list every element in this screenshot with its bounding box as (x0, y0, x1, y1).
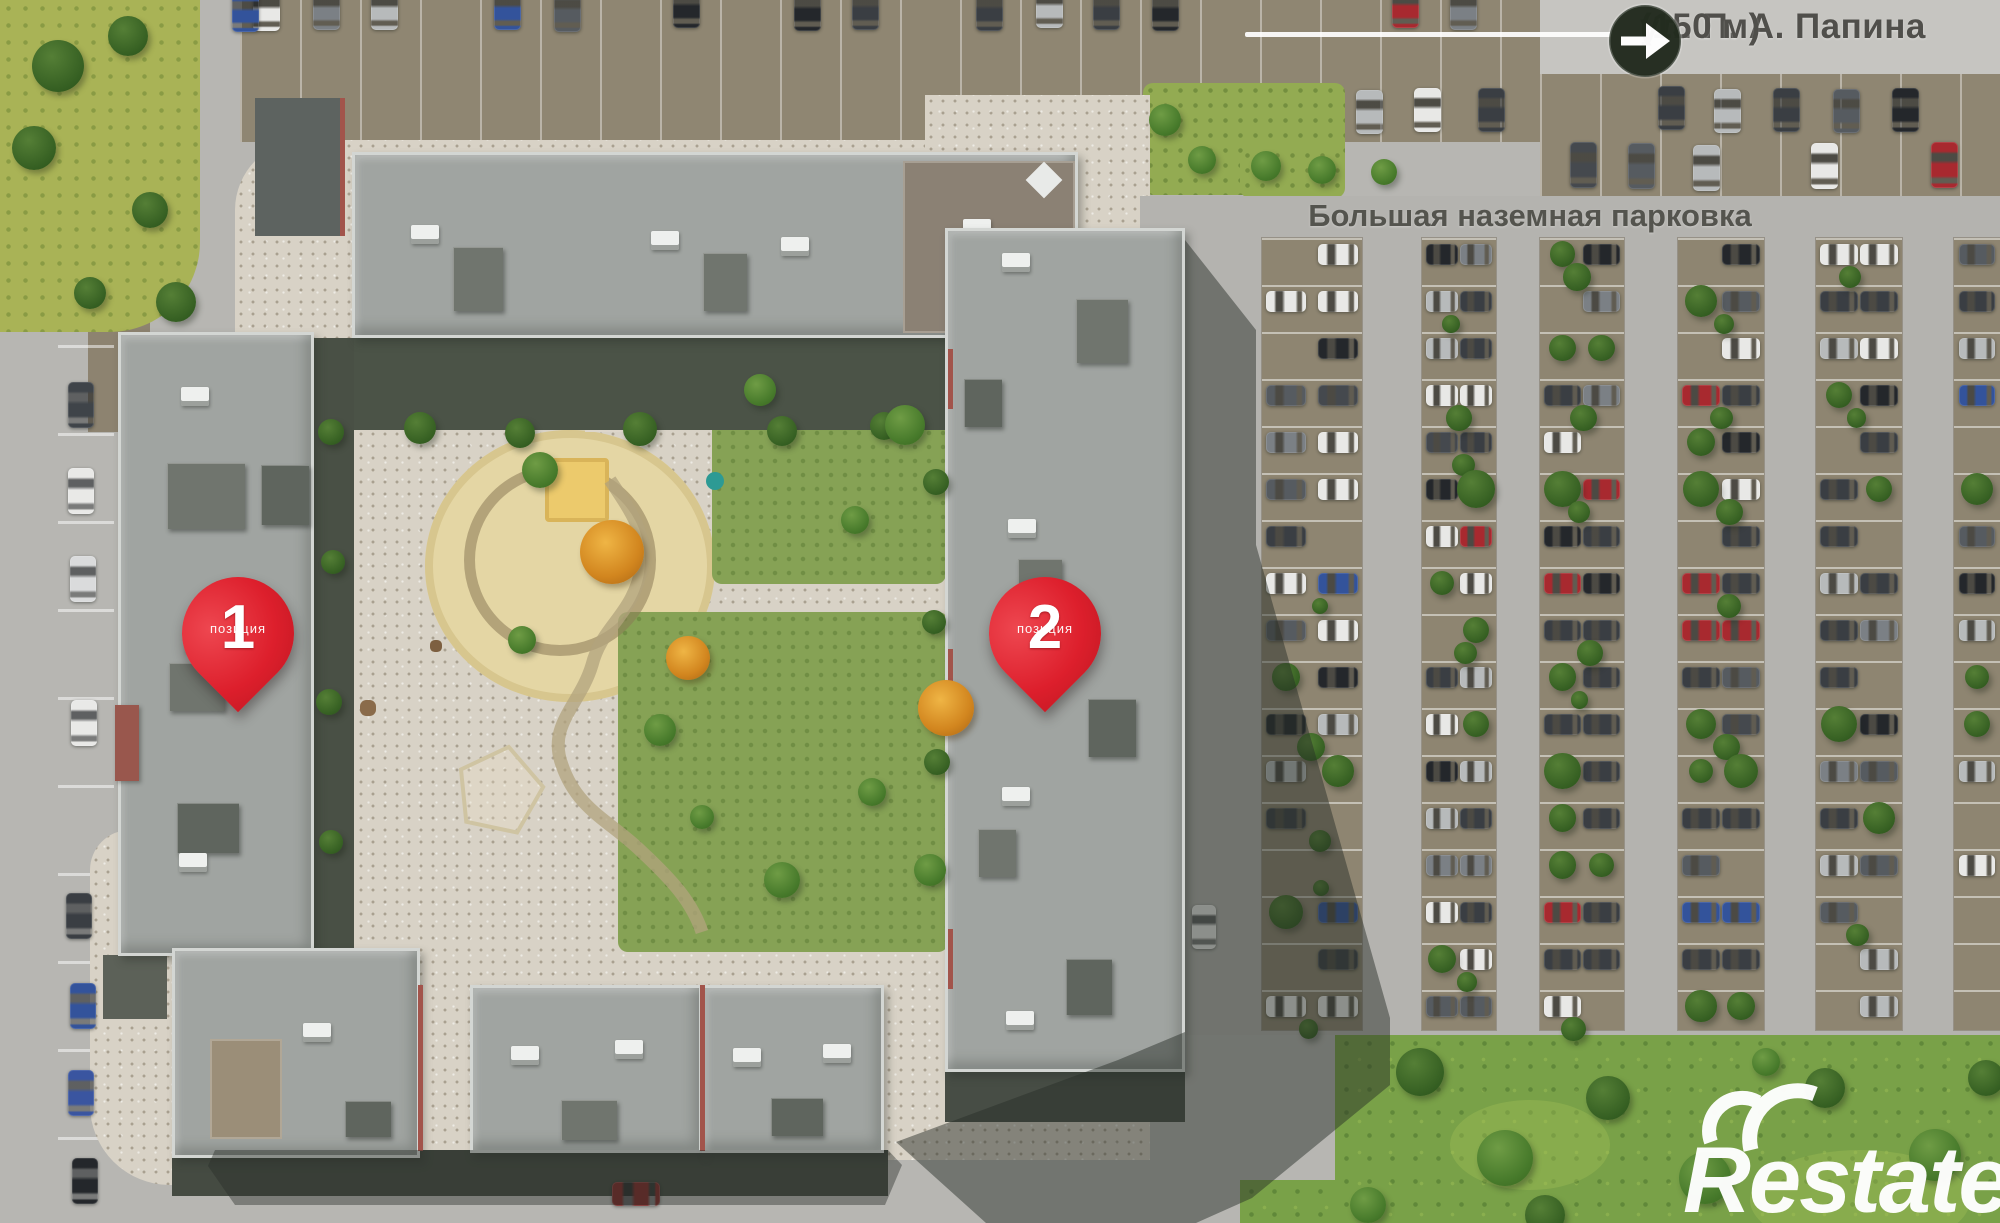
car (1318, 244, 1358, 265)
car (1722, 949, 1760, 970)
roof-tan-section (210, 1039, 282, 1139)
car (70, 983, 96, 1029)
car (1036, 0, 1063, 28)
car (1860, 996, 1898, 1017)
car (1722, 385, 1760, 406)
car (1860, 949, 1898, 970)
bush (1710, 407, 1733, 430)
rooftop-unit (964, 379, 1002, 427)
car (1722, 432, 1760, 453)
car (1426, 244, 1458, 265)
bush (1544, 753, 1581, 790)
car (1682, 949, 1720, 970)
car (1460, 761, 1492, 782)
car (1426, 855, 1458, 876)
car (1392, 0, 1419, 28)
bush (1269, 895, 1302, 928)
bush (1727, 992, 1755, 1020)
car (1266, 620, 1306, 641)
building-south-roof-left (172, 948, 420, 1158)
rooftop-unit (453, 247, 503, 311)
facade-red-trim (948, 929, 953, 989)
tree (508, 626, 536, 654)
car (1722, 338, 1760, 359)
car (1266, 996, 1306, 1017)
bush (505, 418, 535, 448)
car (494, 0, 521, 30)
roof-vent (781, 237, 809, 256)
car (1959, 291, 1995, 312)
car (1722, 667, 1760, 688)
pin-content: 2 позиция (989, 577, 1101, 689)
bush (1570, 405, 1597, 432)
tree (1350, 1187, 1386, 1223)
car (1820, 761, 1858, 782)
tower-red-trim (340, 98, 345, 236)
car (1152, 0, 1179, 31)
car (1860, 620, 1898, 641)
car (1959, 338, 1995, 359)
roof-vent (615, 1040, 643, 1059)
site-plan-scene: ул. П. А. Папина (150 м) Большая наземна… (0, 0, 2000, 1223)
car (1959, 620, 1995, 641)
tree (885, 405, 925, 445)
car (1426, 714, 1458, 735)
car (1722, 573, 1760, 594)
bush (404, 412, 436, 444)
car (1820, 338, 1858, 359)
car (1460, 573, 1492, 594)
car (1583, 667, 1620, 688)
roof-vent (651, 231, 679, 250)
car (1460, 291, 1492, 312)
bush (1457, 972, 1476, 991)
bush (623, 412, 657, 446)
car (1266, 714, 1306, 735)
bush (1297, 733, 1325, 761)
car (1682, 902, 1720, 923)
bush (1568, 501, 1590, 523)
car (1892, 88, 1919, 132)
car (1583, 573, 1620, 594)
roof-vent (1008, 519, 1036, 538)
car (1426, 479, 1458, 500)
bush (1571, 691, 1588, 708)
parapet-red-trim (418, 985, 423, 1151)
car (554, 0, 581, 32)
car (1722, 479, 1760, 500)
tree (858, 778, 886, 806)
tree (74, 277, 106, 309)
bush (1685, 990, 1716, 1021)
car (1318, 338, 1358, 359)
street-arrow-line (1245, 32, 1613, 37)
car (1860, 432, 1898, 453)
bush (1322, 755, 1354, 787)
bush (1149, 104, 1181, 136)
car (1318, 714, 1358, 735)
play-equipment (360, 700, 376, 716)
autumn-tree (580, 520, 644, 584)
car (1860, 338, 1898, 359)
car (70, 556, 96, 602)
bush (1188, 146, 1216, 174)
car (1460, 432, 1492, 453)
roof-vent (181, 387, 209, 406)
car (1628, 143, 1655, 189)
car (1266, 479, 1306, 500)
rooftop-unit (1066, 959, 1112, 1015)
car (1192, 905, 1216, 949)
car (1682, 855, 1720, 876)
car (976, 0, 1003, 31)
bush (321, 550, 345, 574)
car (1860, 573, 1898, 594)
tree (764, 862, 800, 898)
tree (12, 126, 56, 170)
car (1583, 526, 1620, 547)
car (1820, 291, 1858, 312)
car (1318, 667, 1358, 688)
rooftop-unit (177, 803, 239, 853)
bush (1299, 1019, 1319, 1039)
bush (1839, 266, 1861, 288)
autumn-tree (918, 680, 974, 736)
tree (108, 16, 148, 56)
tree (1477, 1130, 1533, 1186)
car (1318, 620, 1358, 641)
car (1460, 338, 1492, 359)
car (1722, 902, 1760, 923)
car (1356, 90, 1383, 134)
tree (522, 452, 558, 488)
car (1426, 902, 1458, 923)
car (1693, 145, 1720, 191)
tree (1586, 1076, 1630, 1120)
car (1714, 89, 1741, 133)
car (1266, 808, 1306, 829)
location-pin-2[interactable]: 2 позиция (966, 554, 1124, 712)
bush (1549, 335, 1576, 362)
grass-area-bottom (1240, 1180, 1340, 1223)
bush (1309, 830, 1331, 852)
rooftop-unit (703, 253, 747, 311)
car (1544, 526, 1581, 547)
car (1820, 808, 1858, 829)
car (232, 0, 259, 32)
bush (1563, 263, 1590, 290)
car (1860, 714, 1898, 735)
bush (1863, 802, 1895, 834)
car (1583, 902, 1620, 923)
car (1820, 479, 1858, 500)
car (1266, 291, 1306, 312)
car (1860, 244, 1898, 265)
bush (1846, 924, 1868, 946)
car (1860, 855, 1898, 876)
car (1544, 573, 1581, 594)
parking-label: Большая наземная парковка (1280, 198, 1780, 238)
car (1959, 244, 1995, 265)
car (1460, 996, 1492, 1017)
car (72, 1158, 98, 1204)
bush (1847, 408, 1867, 428)
car (1583, 808, 1620, 829)
bush (1549, 804, 1576, 831)
car (1460, 808, 1492, 829)
car (1583, 244, 1620, 265)
car (1682, 808, 1720, 829)
pin-caption: позиция (210, 621, 266, 636)
car (1583, 714, 1620, 735)
car (1722, 714, 1760, 735)
car (1460, 526, 1492, 547)
car (68, 1070, 94, 1116)
car (1318, 996, 1358, 1017)
bush (1463, 617, 1489, 643)
building-2-south-wall (945, 1068, 1185, 1122)
car (1426, 291, 1458, 312)
car (1318, 432, 1358, 453)
car (1318, 949, 1358, 970)
car (1266, 432, 1306, 453)
car (852, 0, 879, 30)
car (1426, 667, 1458, 688)
play-umbrella (706, 472, 724, 490)
car (1959, 761, 1995, 782)
car (1722, 244, 1760, 265)
rooftop-unit (771, 1098, 823, 1136)
bush (923, 469, 949, 495)
car (1833, 89, 1860, 133)
car (1460, 667, 1492, 688)
car (1544, 902, 1581, 923)
car (1722, 808, 1760, 829)
car (1426, 338, 1458, 359)
bush (1442, 315, 1460, 333)
tree (1396, 1048, 1444, 1096)
car (1426, 432, 1458, 453)
car (1682, 573, 1720, 594)
car (1860, 385, 1898, 406)
car (1460, 244, 1492, 265)
bush (318, 419, 344, 445)
bush (1549, 851, 1577, 879)
building-south-roof-right (702, 985, 884, 1153)
car (1931, 142, 1958, 188)
bush (1313, 880, 1329, 896)
car (1583, 479, 1620, 500)
car (1460, 902, 1492, 923)
car (1860, 761, 1898, 782)
car (1820, 244, 1858, 265)
rooftop-unit (261, 465, 309, 525)
bush (319, 830, 343, 854)
car (1426, 385, 1458, 406)
car (1478, 88, 1505, 132)
rooftop-unit (561, 1100, 617, 1140)
bush (1961, 473, 1993, 505)
car (1820, 573, 1858, 594)
bush (316, 689, 342, 715)
tree (690, 805, 714, 829)
rooftop-unit (1076, 299, 1128, 363)
bush (1685, 285, 1717, 317)
roof-vent (1006, 1011, 1034, 1030)
car (1266, 573, 1306, 594)
car (1682, 667, 1720, 688)
arrow-right-icon (1606, 2, 1684, 80)
car (1460, 385, 1492, 406)
pin-caption: позиция (1017, 621, 1073, 636)
car (1570, 142, 1597, 188)
car (612, 1182, 660, 1206)
car (1318, 291, 1358, 312)
facade-red-trim (948, 349, 953, 409)
car (71, 700, 97, 746)
bush (1965, 665, 1989, 689)
bush (1821, 706, 1857, 742)
car (1811, 143, 1838, 189)
bush (1371, 159, 1397, 185)
bush (1589, 853, 1613, 877)
bush (1714, 314, 1734, 334)
restate-watermark: Restate (1655, 1082, 2000, 1222)
car (1266, 526, 1306, 547)
car (1583, 385, 1620, 406)
autumn-tree (666, 636, 710, 680)
car (1583, 291, 1620, 312)
car (794, 0, 821, 31)
bush (1272, 663, 1299, 690)
car (1820, 620, 1858, 641)
bush (922, 610, 946, 634)
car (1658, 86, 1685, 130)
car (1426, 996, 1458, 1017)
rooftop-unit (1088, 699, 1136, 757)
car (1820, 855, 1858, 876)
car (1722, 291, 1760, 312)
car (1093, 0, 1120, 30)
car (371, 0, 398, 30)
car (1266, 761, 1306, 782)
car (1959, 855, 1995, 876)
roof-vent (511, 1046, 539, 1065)
car (1682, 620, 1720, 641)
play-equipment (430, 640, 442, 652)
roof-vent (823, 1044, 851, 1063)
car (1426, 761, 1458, 782)
car (1583, 761, 1620, 782)
bush (1251, 151, 1281, 181)
pin-content: 1 позиция (182, 577, 294, 689)
corner-tower (255, 98, 345, 236)
car (1266, 385, 1306, 406)
car (1318, 479, 1358, 500)
bush (1308, 156, 1336, 184)
watermark-text: Restate (1683, 1127, 2000, 1222)
bush (1549, 663, 1577, 691)
car (1460, 855, 1492, 876)
tree (841, 506, 869, 534)
car (1773, 88, 1800, 132)
tree (32, 40, 84, 92)
bush (1457, 470, 1495, 508)
rooftop-unit (167, 463, 245, 529)
rooftop-unit (978, 829, 1016, 877)
car (1544, 996, 1581, 1017)
tree (132, 192, 168, 228)
car (1860, 291, 1898, 312)
car (1959, 526, 1995, 547)
car (673, 0, 700, 28)
car (1318, 385, 1358, 406)
car (1544, 949, 1581, 970)
car (1682, 385, 1720, 406)
car (1820, 667, 1858, 688)
car (1959, 385, 1995, 406)
tree (914, 854, 946, 886)
rooftop-unit (345, 1101, 391, 1137)
car (1544, 620, 1581, 641)
car (1544, 385, 1581, 406)
car (68, 382, 94, 428)
tree (744, 374, 776, 406)
car (313, 0, 340, 30)
car (1318, 573, 1358, 594)
car (1544, 714, 1581, 735)
car (1426, 526, 1458, 547)
car (68, 468, 94, 514)
bush (1577, 640, 1602, 665)
roof-vent (1002, 787, 1030, 806)
car (1820, 902, 1858, 923)
car (1544, 432, 1581, 453)
car (1583, 949, 1620, 970)
parapet-red-trim (700, 985, 705, 1151)
car (1722, 620, 1760, 641)
bush (1588, 335, 1614, 361)
bush (924, 749, 950, 775)
building-south-roof-mid (470, 985, 702, 1153)
car (1583, 620, 1620, 641)
roof-vent (411, 225, 439, 244)
bush (1561, 1017, 1586, 1042)
car (1426, 808, 1458, 829)
car (1414, 88, 1441, 132)
roof-vent (303, 1023, 331, 1042)
tree (1752, 1048, 1780, 1076)
car (1318, 902, 1358, 923)
car (66, 893, 92, 939)
car (1722, 526, 1760, 547)
bush (1687, 428, 1715, 456)
tree (644, 714, 676, 746)
parking-strip-top (240, 0, 1540, 142)
location-pin-1[interactable]: 1 позиция (159, 554, 317, 712)
roof-vent (1002, 253, 1030, 272)
car (1959, 573, 1995, 594)
roof-vent (733, 1048, 761, 1067)
rooftop-red-unit (115, 705, 139, 781)
rooftop-dark-block (103, 955, 167, 1019)
bush (1446, 405, 1471, 430)
car (1460, 949, 1492, 970)
tree (156, 282, 196, 322)
roof-vent (179, 853, 207, 872)
car (1820, 526, 1858, 547)
bush (767, 416, 797, 446)
